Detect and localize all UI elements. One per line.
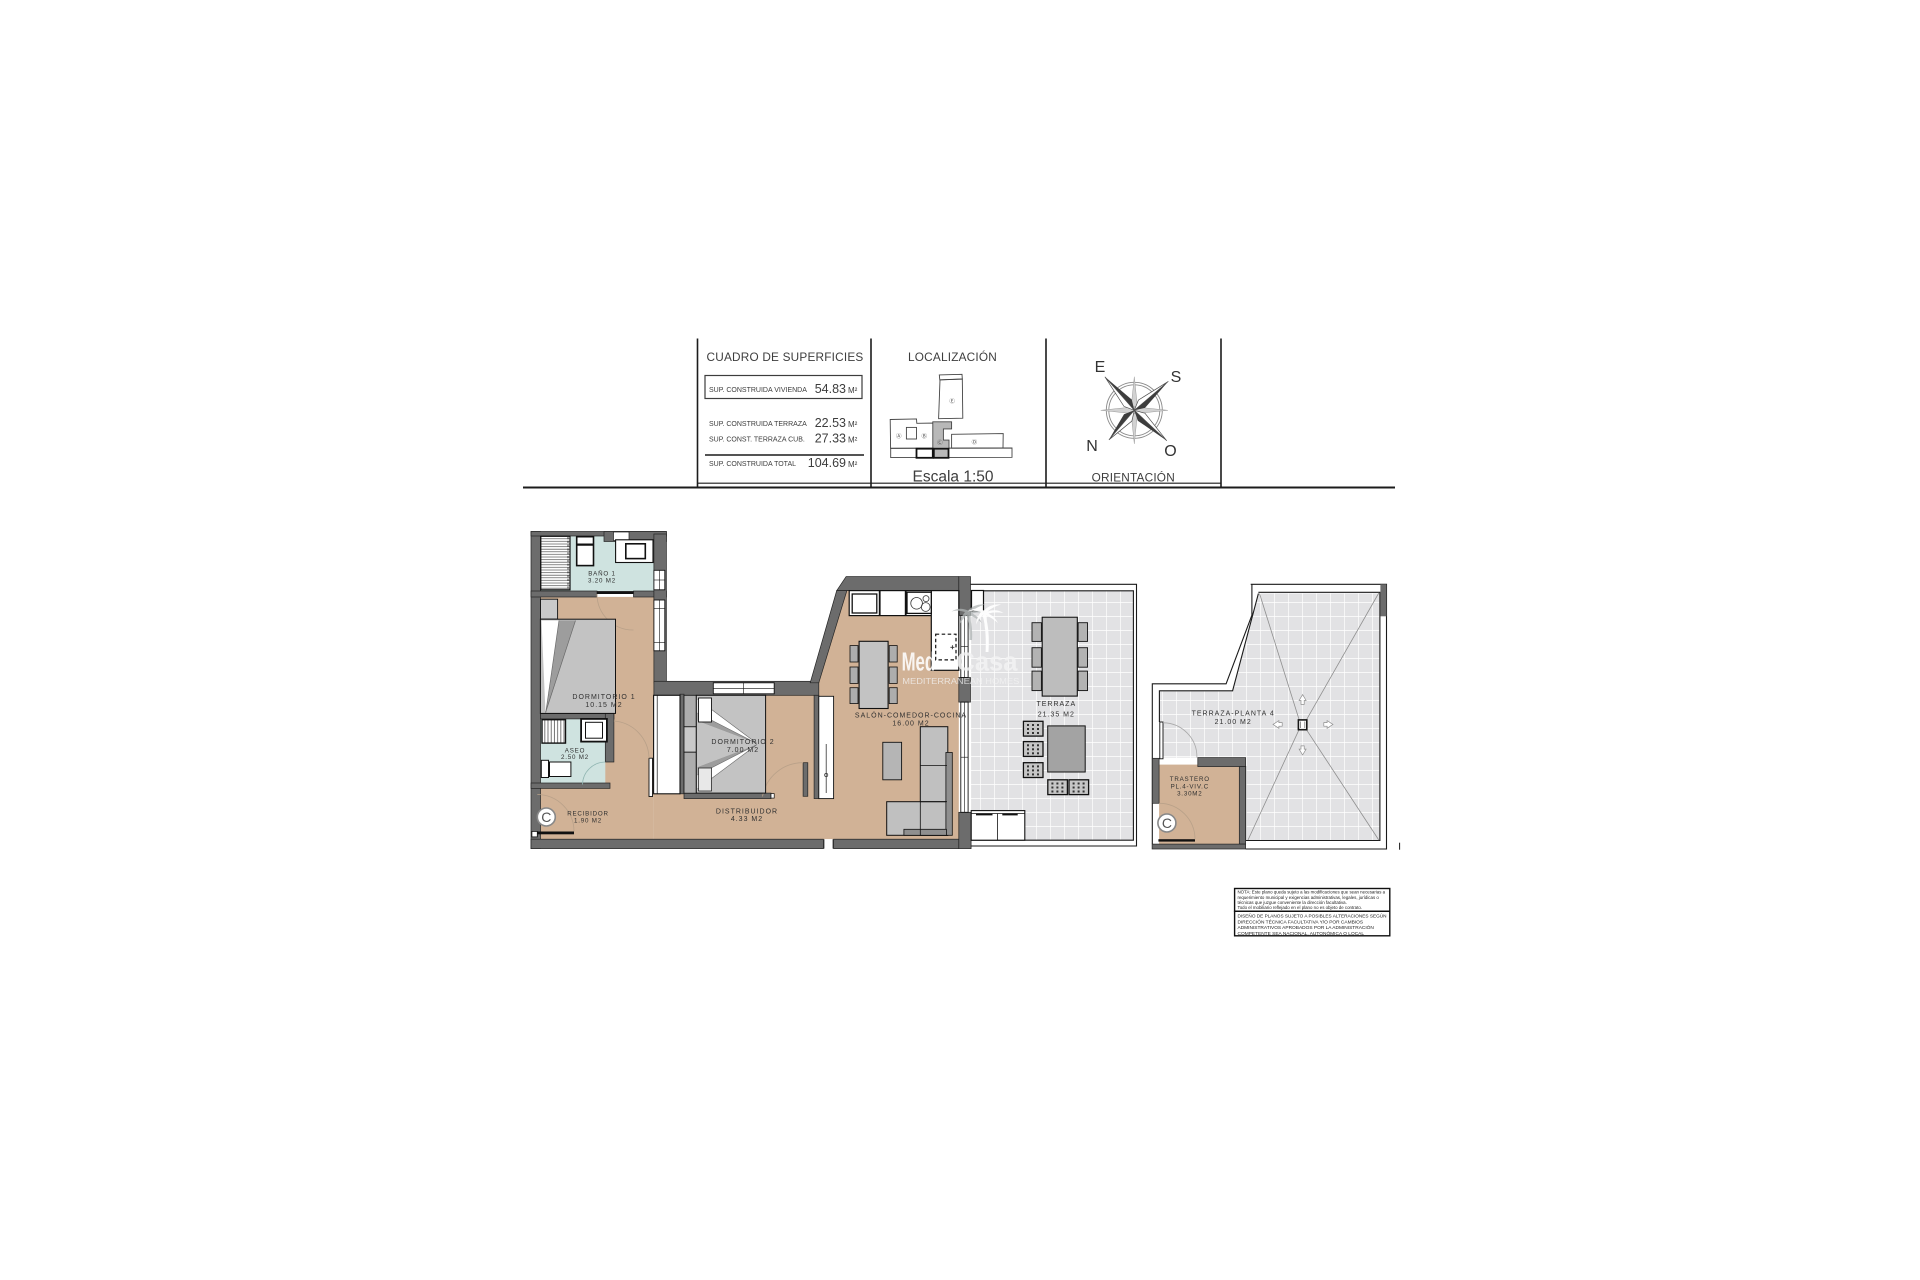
svg-text:7.00 M2: 7.00 M2 — [727, 747, 759, 754]
svg-text:DIRECCIÓN TÉCNICA FACULTATIVA: DIRECCIÓN TÉCNICA FACULTATIVA Y/O POR CA… — [1238, 918, 1364, 925]
svg-text:TRASTERO: TRASTERO — [1170, 776, 1210, 783]
svg-text:16.00 M2: 16.00 M2 — [892, 720, 929, 727]
svg-text:Ⓑ: Ⓑ — [921, 432, 927, 440]
svg-text:Ⓐ: Ⓐ — [896, 432, 902, 440]
svg-text:3.30M2: 3.30M2 — [1177, 791, 1202, 798]
svg-text:DISTRIBUIDOR: DISTRIBUIDOR — [716, 809, 778, 816]
svg-text:TERRAZA: TERRAZA — [1036, 701, 1076, 708]
svg-text:1.90 M2: 1.90 M2 — [574, 817, 602, 824]
svg-text:Casa: Casa — [956, 649, 1018, 677]
svg-text:LOCALIZACIÓN: LOCALIZACIÓN — [908, 350, 997, 364]
svg-text:M²: M² — [848, 386, 858, 395]
svg-text:N: N — [1086, 438, 1098, 455]
svg-text:Escala 1:50: Escala 1:50 — [913, 469, 994, 486]
svg-text:C: C — [541, 809, 551, 825]
svg-text:COMPETENTE SEA NACIONAL, AUTON: COMPETENTE SEA NACIONAL, AUTONÓMICA O LO… — [1238, 930, 1365, 937]
svg-text:M²: M² — [848, 436, 858, 445]
svg-text:21.35 M2: 21.35 M2 — [1038, 712, 1075, 719]
svg-text:SUP. CONSTRUIDA TOTAL: SUP. CONSTRUIDA TOTAL — [709, 461, 796, 468]
svg-text:E: E — [1095, 359, 1106, 376]
svg-text:Ⓔ: Ⓔ — [949, 397, 955, 405]
svg-text:DORMITORIO 1: DORMITORIO 1 — [572, 694, 635, 701]
svg-text:DORMITORIO 2: DORMITORIO 2 — [711, 739, 774, 746]
svg-text:21.00 M2: 21.00 M2 — [1215, 719, 1252, 726]
svg-text:Todo el mobiliario reflejado e: Todo el mobiliario reflejado en el plano… — [1238, 905, 1362, 910]
svg-text:PL.4-VIV.C: PL.4-VIV.C — [1171, 784, 1209, 791]
svg-text:BAÑO 1: BAÑO 1 — [588, 571, 616, 578]
svg-text:SALÓN-COMEDOR-COCINA: SALÓN-COMEDOR-COCINA — [855, 711, 967, 720]
svg-text:104.69: 104.69 — [808, 456, 846, 470]
svg-text:Ⓒ: Ⓒ — [937, 439, 943, 447]
svg-text:22.53: 22.53 — [815, 416, 846, 430]
svg-text:C: C — [1162, 815, 1172, 831]
svg-text:4.33 M2: 4.33 M2 — [731, 816, 763, 823]
svg-text:ADMINISTRATIVOS APROBADOS POR: ADMINISTRATIVOS APROBADOS POR LA ADMINIS… — [1238, 924, 1375, 931]
svg-text:54.83: 54.83 — [815, 382, 846, 396]
svg-text:MEDITERRANEAN HOMES: MEDITERRANEAN HOMES — [902, 676, 1019, 686]
svg-text:SUP. CONSTRUIDA VIVIENDA: SUP. CONSTRUIDA VIVIENDA — [709, 387, 807, 394]
svg-text:10.15 M2: 10.15 M2 — [585, 702, 622, 709]
svg-text:CUADRO DE SUPERFICIES: CUADRO DE SUPERFICIES — [707, 350, 864, 364]
svg-text:3.20 M2: 3.20 M2 — [588, 578, 616, 585]
svg-text:SUP. CONST. TERRAZA CUB.: SUP. CONST. TERRAZA CUB. — [709, 437, 805, 444]
svg-text:O: O — [1164, 443, 1176, 460]
svg-text:SUP. CONSTRUIDA TERRAZA: SUP. CONSTRUIDA TERRAZA — [709, 421, 807, 428]
svg-text:DISEÑO DE PLANOS SUJETO A POSI: DISEÑO DE PLANOS SUJETO A POSIBLES ALTER… — [1238, 913, 1388, 920]
svg-text:M²: M² — [848, 460, 858, 469]
svg-text:Med: Med — [902, 649, 936, 677]
svg-text:M²: M² — [848, 420, 858, 429]
svg-text:ORIENTACIÓN: ORIENTACIÓN — [1092, 471, 1175, 485]
svg-text:2.50 M2: 2.50 M2 — [561, 754, 589, 761]
svg-text:RECIBIDOR: RECIBIDOR — [567, 810, 609, 817]
svg-text:TERRAZA-PLANTA 4: TERRAZA-PLANTA 4 — [1192, 711, 1275, 718]
svg-text:S: S — [1171, 369, 1182, 386]
svg-text:27.33: 27.33 — [815, 432, 846, 446]
svg-text:Ⓓ: Ⓓ — [972, 438, 978, 446]
